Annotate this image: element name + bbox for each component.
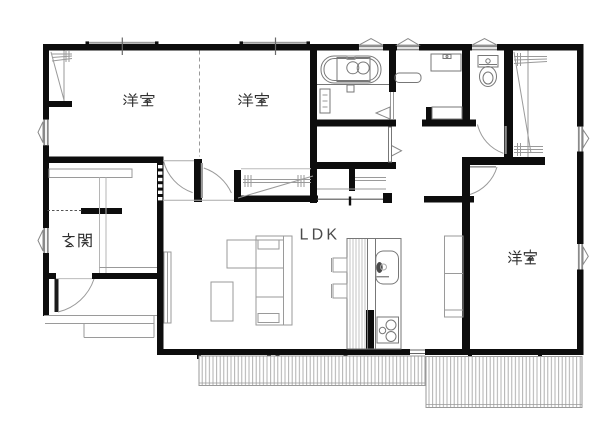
svg-text:LDK: LDK — [300, 227, 341, 244]
